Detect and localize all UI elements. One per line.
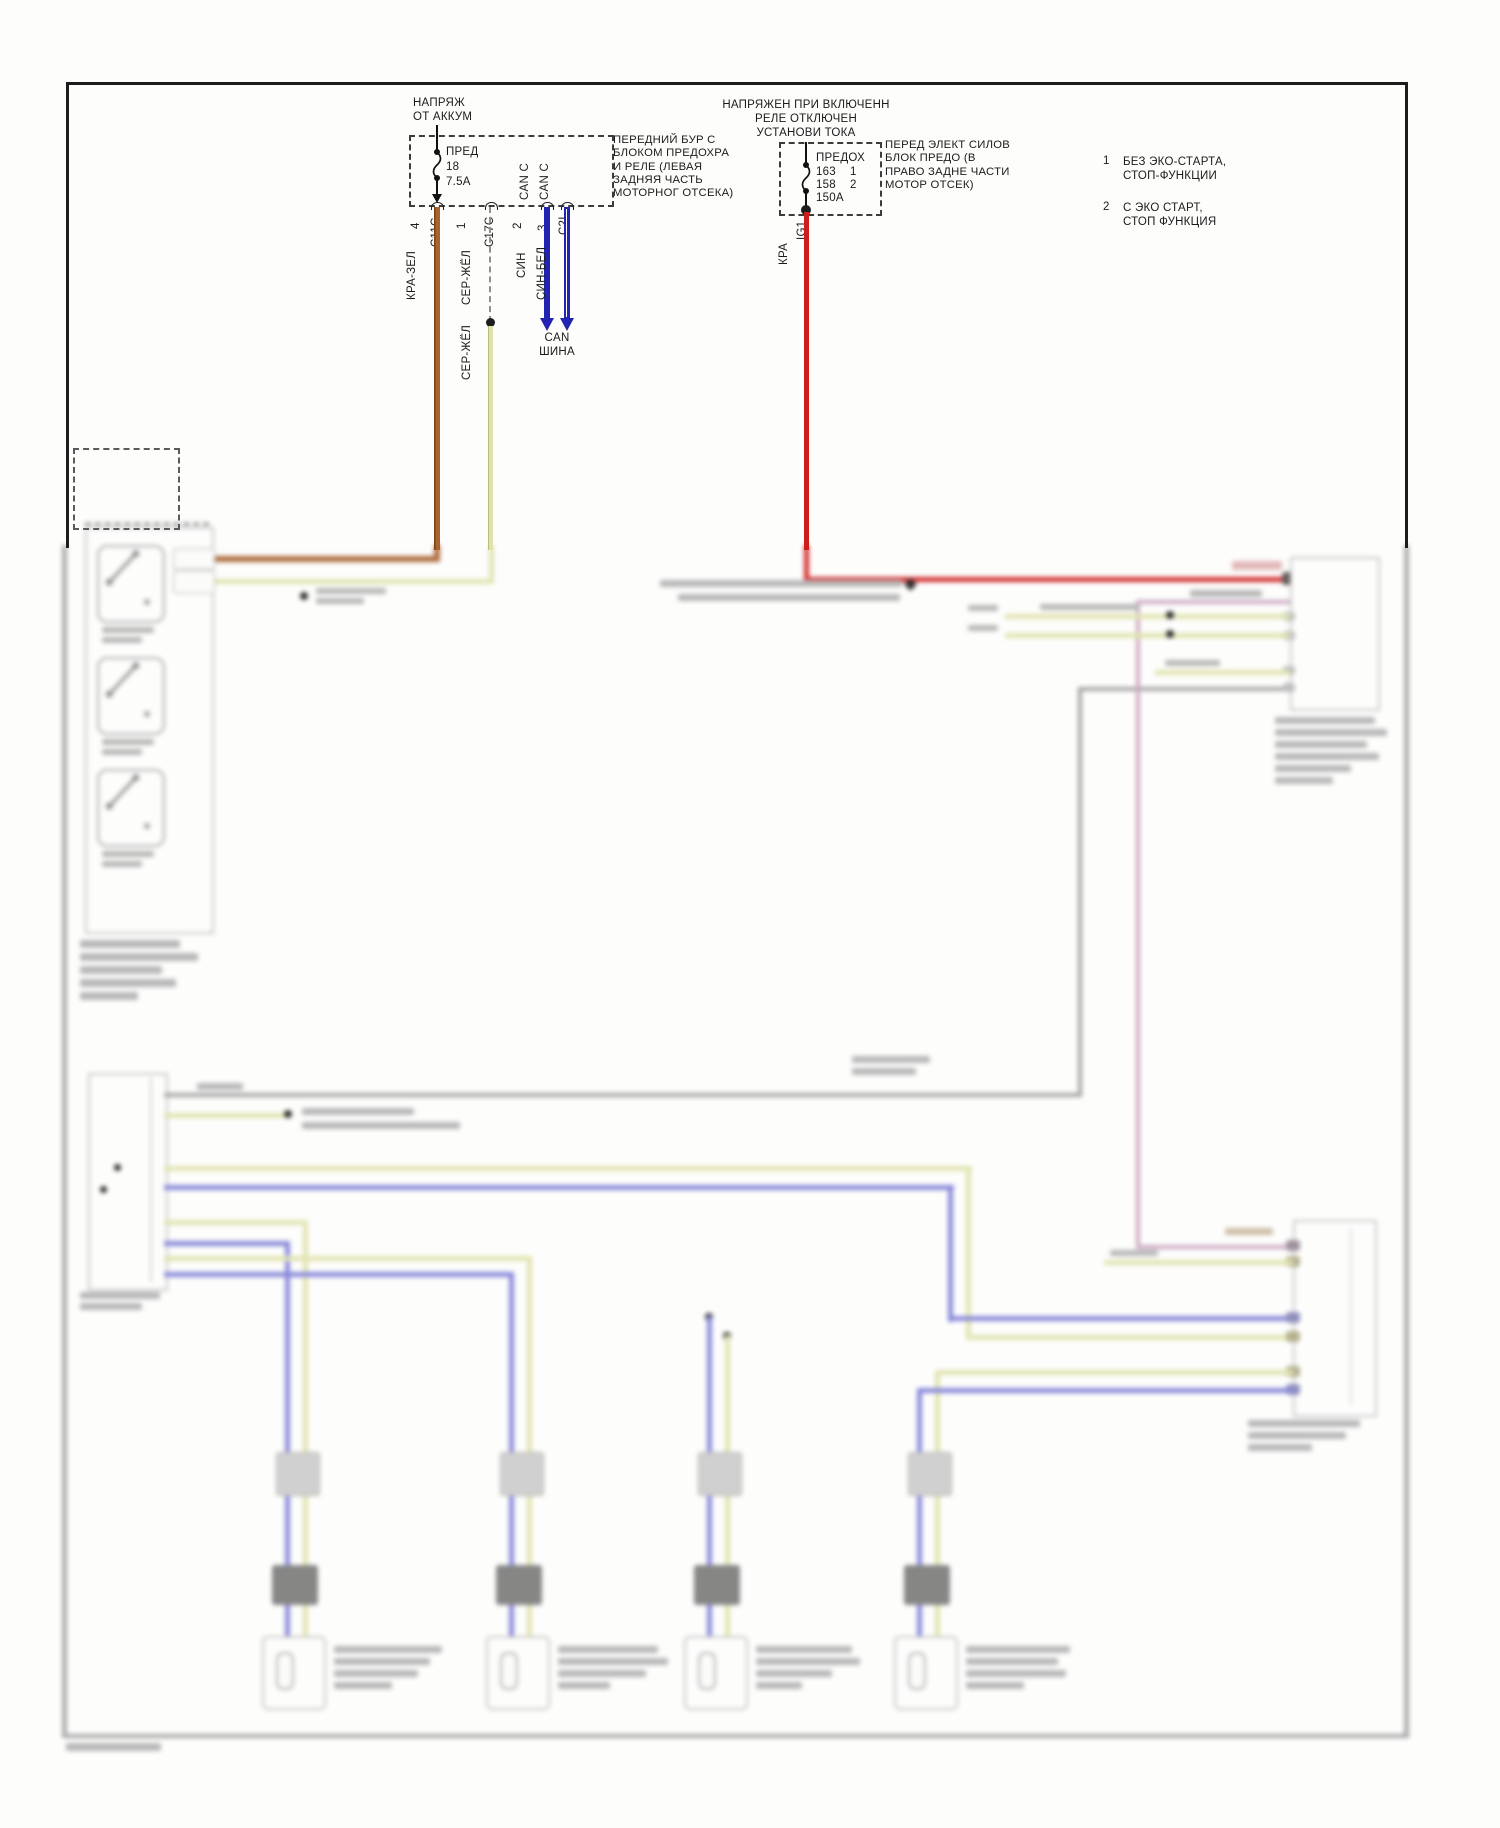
text-smudge (756, 1646, 852, 1653)
can-c-label-right: CAN C (539, 163, 552, 200)
note-2-num: 2 (1103, 201, 1110, 215)
inline-connector-dark (904, 1565, 950, 1605)
wire-blue-drop (948, 1185, 953, 1322)
fuse-symbol (430, 148, 444, 182)
connector-rail (150, 1078, 152, 1282)
text-smudge (334, 1646, 442, 1653)
text-smudge (102, 627, 154, 633)
wire-gray-long (164, 1093, 1082, 1097)
text-smudge (80, 940, 180, 948)
switch-unit (97, 657, 165, 735)
wire-kra-zel-horizontal (213, 556, 440, 562)
wire-blue-to-module2 (948, 1316, 1293, 1321)
wire-ser-zhel-lower (489, 545, 494, 583)
wire-ser-zhel-dashed (489, 207, 491, 322)
junction-dot (300, 592, 308, 600)
text-smudge (80, 1292, 160, 1299)
junction-dot (284, 1110, 292, 1118)
text-smudge (102, 739, 154, 745)
wire-label-sin: СИН (516, 252, 529, 278)
wire-yellow-comp4 (940, 1370, 1293, 1375)
inline-connector (276, 1452, 320, 1496)
text-smudge (1248, 1444, 1312, 1451)
text-smudge (1275, 753, 1379, 760)
text-smudge (756, 1658, 860, 1665)
fuse1-number: 18 (446, 161, 459, 175)
text-smudge (80, 966, 162, 974)
text-smudge (852, 1068, 916, 1075)
text-smudge (1225, 1228, 1273, 1235)
left-block-dashed-outline (73, 448, 180, 530)
wire-blue-comp2 (164, 1272, 514, 1277)
bottom-component-1 (262, 1636, 326, 1710)
wire-yellow-comp2 (164, 1256, 532, 1261)
text-smudge (968, 605, 998, 611)
switch-unit (97, 545, 165, 623)
inline-connector-dark (272, 1565, 318, 1605)
wire-yellow-m1a (1005, 614, 1290, 619)
text-smudge (316, 588, 386, 594)
text-smudge (102, 637, 142, 643)
pin-number-2: 2 (512, 222, 525, 229)
junction-dot (114, 1164, 121, 1171)
text-smudge (1275, 729, 1387, 736)
wire-kra-zel (434, 207, 440, 550)
text-smudge (102, 749, 142, 755)
left-connector-block (88, 1073, 168, 1291)
fuse2-row1-ref: 1 (850, 166, 857, 180)
can-arrow-right (560, 318, 574, 331)
text-smudge (80, 953, 198, 961)
wire-kra (804, 212, 809, 550)
fuse-symbol (799, 161, 813, 195)
connector-rail (1350, 1228, 1352, 1405)
frame-right-lower (1404, 545, 1409, 1738)
component-pin (908, 1652, 926, 1690)
frame-left (66, 82, 69, 548)
text-smudge (1165, 660, 1220, 666)
text-smudge (80, 979, 176, 987)
fuse1-rating: 7.5A (446, 176, 471, 190)
right-module-2 (1293, 1220, 1377, 1417)
wire-blue-long (164, 1185, 954, 1190)
pin-number-4: 4 (410, 222, 423, 229)
wire-yellow-comp4-drop (935, 1370, 940, 1648)
text-smudge (334, 1658, 430, 1665)
blurred-diagram-region (0, 0, 1500, 1828)
frame-top (66, 82, 1408, 85)
footer-smudge (66, 1743, 161, 1751)
frame-bottom (62, 1734, 1409, 1738)
bottom-component-4 (894, 1636, 958, 1710)
can-c-label-left: CAN C (519, 163, 532, 200)
wire-mauve-drop (1136, 600, 1140, 1249)
fuse2-rating: 150A (816, 192, 844, 206)
text-smudge (1190, 590, 1262, 597)
text-smudge (756, 1670, 832, 1677)
text-smudge (1040, 604, 1140, 610)
pin-blob (1286, 1331, 1300, 1342)
wire-label-ser-zhel-top: СЕР-ЖЁЛ (461, 250, 474, 305)
wire-yellow-m1b (1005, 633, 1290, 638)
wire-label-smudge (1232, 561, 1282, 570)
battery-box-description: ПЕРЕДНИЙ БУР С БЛОКОМ ПРЕДОХРА И РЕЛЕ (Л… (613, 134, 733, 200)
wire-gray-riser (1078, 687, 1082, 1097)
note-1-num: 1 (1103, 155, 1110, 169)
wire-yellow-m1c (1155, 670, 1290, 675)
text-smudge (966, 1670, 1066, 1677)
text-smudge (80, 1303, 142, 1310)
wire-mauve-from-module1 (1140, 600, 1290, 604)
note-1-text: БЕЗ ЭКО-СТАРТА, СТОП-ФУНКЦИИ (1123, 155, 1226, 183)
wire-yellow-long (164, 1166, 972, 1171)
wire-label-kra-zel: КРА-ЗЕЛ (406, 251, 419, 300)
text-smudge (302, 1108, 414, 1115)
fuse2-row1-val: 163 (816, 166, 836, 180)
right-module-1 (1290, 557, 1380, 711)
text-smudge (80, 992, 138, 1000)
text-smudge (558, 1646, 658, 1653)
ignition-box-description: ПЕРЕД ЭЛЕКТ СИЛОВ БЛОК ПРЕДО (В ПРАВО ЗА… (885, 139, 1010, 192)
text-smudge (197, 1083, 243, 1090)
junction-dot (1166, 611, 1174, 619)
text-smudge (1110, 1250, 1158, 1256)
text-smudge (660, 580, 902, 587)
text-smudge (968, 625, 998, 631)
wire-label-sin-bel: СИН-БЕЛ (536, 247, 549, 300)
text-smudge (756, 1682, 802, 1689)
fuse2-name: ПРЕДОХ (816, 152, 865, 166)
text-smudge (966, 1646, 1070, 1653)
text-smudge (1248, 1420, 1360, 1427)
wire-mauve-to-module2 (1136, 1245, 1293, 1249)
text-smudge (1275, 777, 1333, 784)
frame-left-lower (62, 545, 67, 1738)
wire-blue-comp1 (164, 1241, 290, 1246)
fuse2-row2-val: 158 (816, 179, 836, 193)
wire-yellow-m2-top (1104, 1260, 1293, 1265)
left-block-connector (173, 570, 215, 594)
switch-unit (97, 769, 165, 847)
wire-ser-zhel-solid (488, 326, 493, 550)
wire-yellow-drop (966, 1166, 971, 1340)
inline-connector (908, 1452, 952, 1496)
wire-blue-comp4-drop (917, 1388, 922, 1648)
text-smudge (334, 1670, 418, 1677)
pin-arc (485, 202, 498, 210)
wire-label-ser-zhel-bottom: СЕР-ЖЁЛ (461, 325, 474, 380)
fuse1-name: ПРЕД (446, 146, 478, 160)
wire-yellow-comp1 (164, 1220, 308, 1225)
can-arrow-left (540, 318, 554, 331)
text-smudge (302, 1122, 460, 1129)
text-smudge (334, 1682, 392, 1689)
wire-yellow-ground (164, 1113, 291, 1118)
text-smudge (1275, 717, 1375, 724)
frame-right (1405, 82, 1408, 548)
text-smudge (966, 1658, 1058, 1665)
ignition-box-title: НАПРЯЖЕН ПРИ ВКЛЮЧЕНН РЕЛЕ ОТКЛЮЧЕН УСТА… (700, 99, 912, 140)
bottom-component-3 (684, 1636, 748, 1710)
text-smudge (1275, 765, 1351, 772)
battery-box-title: НАПРЯЖ ОТ АККУМ (413, 97, 472, 124)
text-smudge (1248, 1432, 1346, 1439)
component-pin (698, 1652, 716, 1690)
wire-label-kra: КРА (778, 243, 791, 265)
wire-sin-bel-stripe (566, 209, 567, 317)
text-smudge (316, 598, 364, 604)
junction-dot (100, 1186, 107, 1193)
text-smudge (966, 1682, 1024, 1689)
text-smudge (102, 861, 142, 867)
left-block-connector (173, 548, 215, 570)
wire-gray-to-module (1078, 687, 1292, 691)
text-smudge (558, 1670, 646, 1677)
junction-dot (1166, 630, 1174, 638)
pin-blob (1283, 683, 1295, 692)
inline-connector-dark (496, 1565, 542, 1605)
component-pin (500, 1652, 518, 1690)
wire-ser-zhel-horizontal (213, 579, 494, 584)
wire-blue-comp4 (922, 1388, 1293, 1393)
pin-blob (1286, 1240, 1300, 1251)
wire-yellow-to-module2 (966, 1335, 1293, 1340)
text-smudge (678, 594, 900, 601)
fuse2-row2-ref: 2 (850, 179, 857, 193)
text-smudge (102, 851, 154, 857)
wire-kra-lower (804, 545, 809, 581)
text-smudge (1275, 741, 1367, 748)
text-smudge (558, 1682, 610, 1689)
inline-connector (500, 1452, 544, 1496)
component-pin (276, 1652, 294, 1690)
pin-number-1: 1 (456, 222, 469, 229)
text-smudge (852, 1056, 930, 1063)
inline-connector (698, 1452, 742, 1496)
pin-blob (1286, 1312, 1300, 1323)
can-bus-label: CAN ШИНА (536, 332, 578, 359)
wiring-diagram-page: НАПРЯЖ ОТ АККУМ ПРЕД 18 7.5A CAN C CAN C… (0, 0, 1500, 1828)
bottom-component-2 (486, 1636, 550, 1710)
note-2-text: С ЭКО СТАРТ, СТОП ФУНКЦИЯ (1123, 201, 1216, 229)
inline-connector-dark (694, 1565, 740, 1605)
text-smudge (558, 1658, 668, 1665)
